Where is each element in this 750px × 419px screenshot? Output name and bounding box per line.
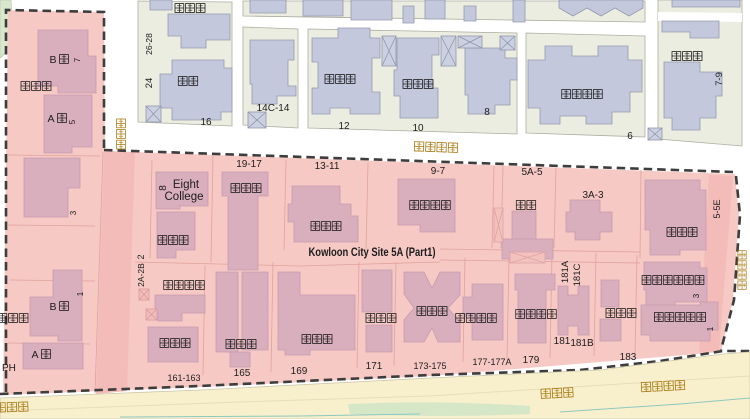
svg-text:16: 16 <box>200 117 212 128</box>
svg-text:173-175: 173-175 <box>413 361 446 371</box>
svg-text:13-11: 13-11 <box>315 161 340 172</box>
svg-text:169: 169 <box>291 366 308 377</box>
svg-text:183: 183 <box>620 352 637 363</box>
svg-text:Eight: Eight <box>173 179 200 191</box>
svg-text:7: 7 <box>73 57 82 62</box>
svg-text:3A-3: 3A-3 <box>582 190 604 201</box>
svg-text:2: 2 <box>136 254 146 259</box>
svg-text:A: A <box>47 113 54 125</box>
svg-text:179: 179 <box>523 355 540 366</box>
svg-text:1: 1 <box>76 291 85 296</box>
svg-text:5-5E: 5-5E <box>712 199 722 218</box>
svg-text:177-177A: 177-177A <box>472 357 511 367</box>
svg-text:181C: 181C <box>572 264 583 287</box>
svg-text:10: 10 <box>412 123 424 134</box>
svg-text:College: College <box>165 191 204 203</box>
svg-text:171: 171 <box>366 361 383 372</box>
svg-text:6: 6 <box>627 131 633 142</box>
svg-text:3: 3 <box>69 210 78 215</box>
svg-text:3: 3 <box>692 293 701 298</box>
svg-text:12: 12 <box>338 121 350 132</box>
svg-text:8: 8 <box>158 185 169 191</box>
svg-text:5: 5 <box>68 119 77 124</box>
svg-text:B: B <box>49 301 56 313</box>
svg-text:14C-14: 14C-14 <box>257 103 290 114</box>
svg-text:1: 1 <box>706 326 715 331</box>
svg-text:19-17: 19-17 <box>236 159 262 170</box>
svg-text:181B: 181B <box>570 338 594 349</box>
svg-text:24: 24 <box>144 78 155 89</box>
svg-text:7-9: 7-9 <box>714 72 725 86</box>
svg-text:5A-5: 5A-5 <box>521 167 543 178</box>
svg-text:9-7: 9-7 <box>431 166 446 177</box>
svg-text:PH: PH <box>2 363 16 374</box>
svg-text:181A: 181A <box>560 260 571 283</box>
svg-text:26-28: 26-28 <box>144 33 154 55</box>
svg-text:161-163: 161-163 <box>167 373 200 383</box>
svg-text:181: 181 <box>554 336 571 347</box>
svg-text:Kowloon City Site 5A (Part1): Kowloon City Site 5A (Part1) <box>309 247 436 259</box>
svg-text:A: A <box>31 349 38 361</box>
svg-text:8: 8 <box>484 107 490 118</box>
svg-text:B: B <box>49 54 56 66</box>
svg-text:165: 165 <box>234 368 251 379</box>
svg-text:2A-2B: 2A-2B <box>136 263 146 287</box>
